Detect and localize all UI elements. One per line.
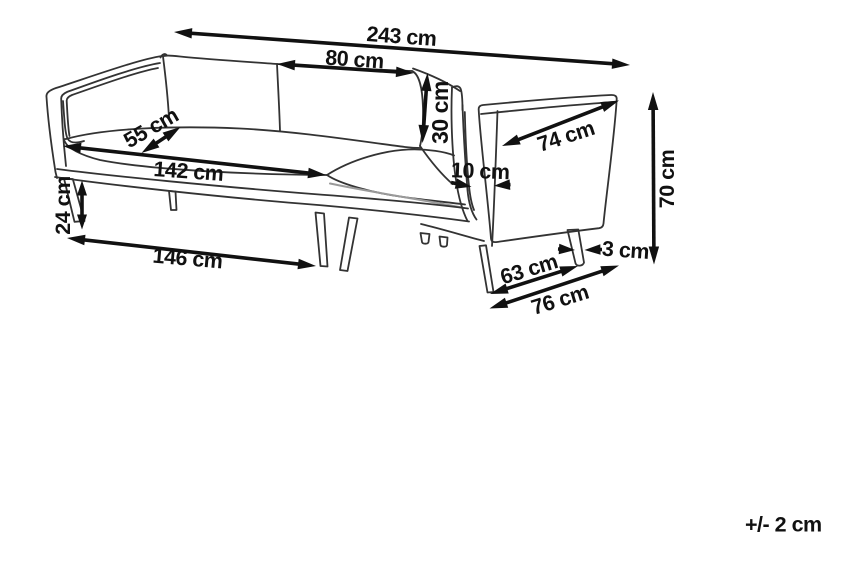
- svg-text:80 cm: 80 cm: [324, 46, 384, 74]
- svg-text:30 cm: 30 cm: [427, 81, 453, 144]
- svg-text:142 cm: 142 cm: [153, 157, 224, 186]
- svg-text:3 cm: 3 cm: [601, 237, 650, 264]
- svg-text:243 cm: 243 cm: [366, 22, 437, 51]
- svg-text:10 cm: 10 cm: [451, 158, 510, 184]
- svg-text:70 cm: 70 cm: [655, 150, 679, 208]
- svg-text:24 cm: 24 cm: [51, 176, 75, 234]
- svg-text:+/- 2 cm: +/- 2 cm: [745, 513, 822, 537]
